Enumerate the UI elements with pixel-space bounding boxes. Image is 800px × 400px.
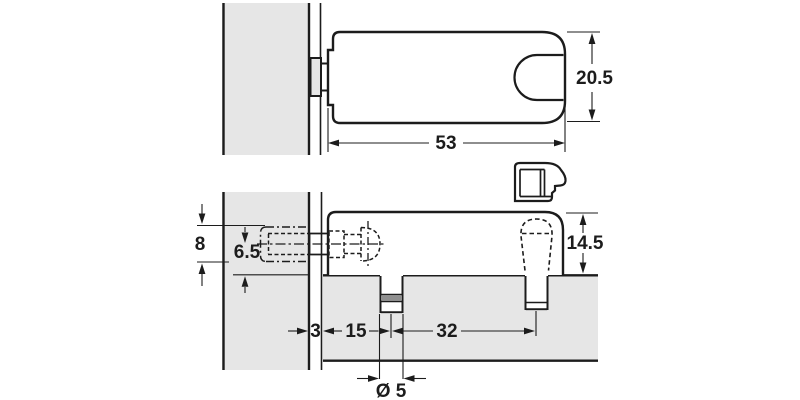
hinge-fitting-drawing: 53 20.5 [0,0,800,400]
dim-body-width-label: 20.5 [576,68,613,89]
arrowhead [554,140,565,147]
top-view: 53 20.5 [222,3,613,155]
mounting-plug-top-view [311,58,322,96]
dowel-rib [381,296,402,301]
dim-dowel-spacing-label: 32 [436,321,457,342]
cabinet-panel-side-view [222,192,310,370]
dim-hole-diameter-label: 8 [195,234,206,255]
dim-body-length-label: 53 [435,133,456,154]
arrowhead [199,264,206,275]
side-view: 14.5 8 6.5 [195,163,604,400]
arrowhead [580,263,587,274]
mounting-panel [323,276,598,360]
cover-cap-detail [515,163,566,201]
dim-body-width: 20.5 [567,32,613,122]
technical-drawing-page: 53 20.5 [0,0,800,400]
dim-edge-to-first-dowel-label: 15 [345,321,367,342]
dim-body-height: 14.5 [566,213,604,274]
arrowhead [589,33,596,44]
dim-dowel-diameter-label: Ø 5 [376,381,407,400]
arrowhead [580,214,587,225]
dim-panel-gap-label: 3 [310,321,321,342]
arrowhead [589,110,596,121]
cabinet-panel-top-view [222,3,310,155]
dim-hole-center-height-label: 6.5 [234,242,261,263]
dowel-hole-2 [525,276,548,311]
arrowhead [199,214,206,225]
hinge-body-top-view [328,32,565,123]
arrowhead [328,140,339,147]
dim-dowel-diameter: Ø 5 [357,375,426,400]
dim-body-height-label: 14.5 [567,233,604,254]
